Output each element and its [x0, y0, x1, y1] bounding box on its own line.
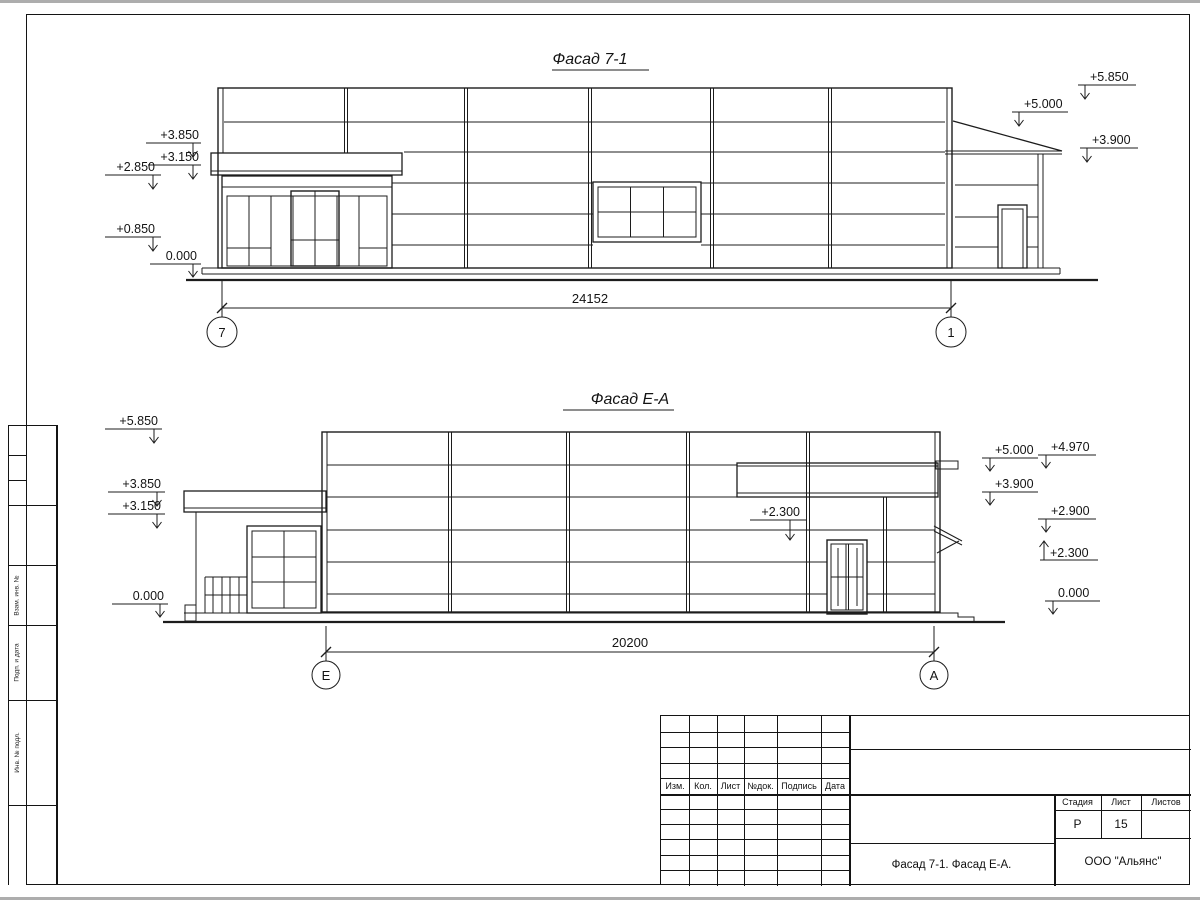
axis-label: 7 [218, 325, 225, 340]
svg-text:+2.300: +2.300 [761, 505, 800, 519]
facade-top-dimension: 24152 [217, 281, 956, 317]
facade-top-canopy [211, 153, 402, 175]
stamp-cell: Взам. инв. № [9, 565, 25, 625]
svg-text:+3.150: +3.150 [160, 150, 199, 164]
facade-bottom-awning [934, 526, 962, 553]
svg-text:0.000: 0.000 [166, 249, 197, 263]
dimension-value: 24152 [572, 291, 608, 306]
svg-text:0.000: 0.000 [1058, 586, 1089, 600]
sheets-label: Листов [1141, 794, 1191, 810]
facade-top-title: Фасад 7-1 [553, 51, 628, 68]
axis-bubble-A: А [920, 661, 948, 689]
elevation-mark-up: +2.300 [1040, 541, 1099, 560]
elevation-mark: +5.000 [982, 443, 1038, 471]
facade-top-storefront [222, 176, 392, 268]
stage-label: Стадия [1054, 794, 1101, 810]
rev-col-izm: Изм. [661, 778, 689, 794]
axis-bubble-E: Е [312, 661, 340, 689]
rev-col-data: Дата [821, 778, 849, 794]
facade-top-drawing: Фасад 7-1 [105, 51, 1138, 347]
elevation-mark: +5.850 [105, 414, 162, 443]
svg-text:+2.900: +2.900 [1051, 504, 1090, 518]
title-block: Изм. Кол. Лист №док. Подпись Дата Стадия… [660, 715, 1190, 885]
axis-bubble-1: 1 [936, 317, 966, 347]
axis-bubble-7: 7 [207, 317, 237, 347]
stage-value: Р [1054, 810, 1101, 838]
facade-bottom-annex [184, 491, 326, 621]
elevation-mark: +3.150 [108, 499, 165, 528]
stamp-cell: Подп. и дата [9, 625, 25, 700]
svg-text:+2.300: +2.300 [1050, 546, 1089, 560]
stamp-label: Подп. и дата [14, 643, 21, 681]
elevation-mark: 0.000 [112, 589, 168, 617]
stamp-cell: Инв. № подл. [9, 700, 25, 805]
sheets-value [1141, 810, 1191, 838]
axis-label: Е [322, 668, 331, 683]
svg-text:+2.850: +2.850 [116, 160, 155, 174]
svg-text:+5.000: +5.000 [995, 443, 1034, 457]
svg-text:0.000: 0.000 [133, 589, 164, 603]
svg-text:+4.970: +4.970 [1051, 440, 1090, 454]
facade-bottom-door [827, 540, 867, 614]
svg-text:+3.850: +3.850 [160, 128, 199, 142]
svg-text:+3.900: +3.900 [995, 477, 1034, 491]
facade-bottom-dimension: 20200 [321, 626, 939, 661]
facade-bottom-drawing: Фасад Е-А [105, 391, 1100, 689]
rev-col-podpis: Подпись [777, 778, 821, 794]
elevation-mark: 0.000 [150, 249, 201, 277]
rev-col-list: Лист [717, 778, 744, 794]
axis-label: 1 [947, 325, 954, 340]
stamp-label: Инв. № подл. [14, 732, 21, 773]
elevation-mark: +0.850 [105, 222, 161, 251]
steps [940, 613, 974, 622]
facade-bottom-fascia [737, 461, 958, 497]
elevation-mark-leader: +2.300 [750, 505, 806, 540]
elevation-mark: +4.970 [1038, 440, 1096, 468]
sheet-label: Лист [1101, 794, 1141, 810]
rev-col-kol: Кол. [689, 778, 717, 794]
svg-text:+3.150: +3.150 [122, 499, 161, 513]
elevation-mark: +2.900 [1038, 504, 1096, 532]
company-name: ООО "Альянс" [1055, 838, 1191, 886]
rev-col-ndoc: №док. [744, 778, 777, 794]
svg-text:+0.850: +0.850 [116, 222, 155, 236]
elevation-mark: +3.900 [982, 477, 1038, 505]
svg-text:+5.000: +5.000 [1024, 97, 1063, 111]
dimension-value: 20200 [612, 635, 648, 650]
facade-top-window [593, 182, 701, 242]
svg-text:+3.900: +3.900 [1092, 133, 1131, 147]
elevation-mark: +5.850 [1078, 70, 1136, 99]
svg-text:+5.850: +5.850 [119, 414, 158, 428]
stamp-label: Взам. инв. № [14, 575, 21, 615]
svg-text:+3.850: +3.850 [122, 477, 161, 491]
drawing-name: Фасад 7-1. Фасад Е-А. [849, 843, 1054, 886]
elevation-mark: +5.000 [1012, 97, 1068, 126]
elevation-mark: +3.900 [1080, 133, 1138, 162]
svg-text:+5.850: +5.850 [1090, 70, 1129, 84]
facade-bottom-title: Фасад Е-А [591, 391, 669, 408]
sheet-value: 15 [1101, 810, 1141, 838]
facade-top-annex [945, 121, 1062, 268]
axis-label: А [930, 668, 939, 683]
drawing-sheet: Фасад 7-1 [0, 0, 1200, 900]
elevation-mark: 0.000 [1045, 586, 1100, 614]
elevation-mark: +2.850 [105, 160, 161, 189]
